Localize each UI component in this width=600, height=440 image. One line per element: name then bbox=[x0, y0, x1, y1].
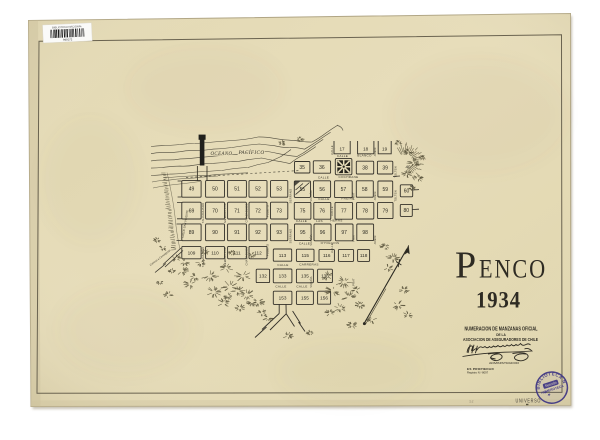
svg-text:92: 92 bbox=[255, 230, 261, 236]
svg-text:PRAT: PRAT bbox=[352, 278, 356, 286]
svg-text:118: 118 bbox=[360, 253, 368, 258]
svg-text:SERRANO: SERRANO bbox=[289, 189, 293, 204]
svg-text:116: 116 bbox=[323, 253, 331, 258]
svg-text:80: 80 bbox=[404, 208, 410, 214]
svg-text:CARRERAS: CARRERAS bbox=[299, 262, 319, 266]
svg-text:CALLE: CALLE bbox=[277, 263, 288, 267]
svg-text:TOLTEN: TOLTEN bbox=[394, 190, 398, 202]
svg-text:156: 156 bbox=[320, 295, 328, 300]
svg-text:39: 39 bbox=[382, 165, 388, 171]
svg-text:153: 153 bbox=[279, 296, 287, 301]
svg-text:Registro N.º 8097: Registro N.º 8097 bbox=[467, 371, 489, 375]
svg-text:DE LA: DE LA bbox=[496, 333, 506, 337]
svg-text:MEMBRILLAR: MEMBRILLAR bbox=[223, 247, 227, 266]
svg-text:38: 38 bbox=[362, 165, 368, 171]
svg-text:JUNIN: JUNIN bbox=[373, 236, 377, 245]
svg-text:50: 50 bbox=[212, 187, 218, 193]
svg-text:115: 115 bbox=[301, 253, 309, 258]
svg-text:ENCO: ENCO bbox=[479, 255, 547, 284]
svg-text:132: 132 bbox=[259, 274, 267, 279]
svg-text:CALLE: CALLE bbox=[296, 219, 307, 223]
svg-text:JUNIN: JUNIN bbox=[373, 192, 377, 201]
svg-text:77: 77 bbox=[341, 209, 347, 215]
svg-text:113: 113 bbox=[279, 253, 287, 258]
svg-text:TALCAHUANO: TALCAHUANO bbox=[201, 203, 205, 223]
svg-text:P: P bbox=[455, 245, 477, 287]
svg-text:51: 51 bbox=[234, 187, 240, 193]
svg-text:133: 133 bbox=[279, 274, 287, 279]
svg-text:PRAT: PRAT bbox=[352, 234, 356, 242]
svg-text:COCHRANE: COCHRANE bbox=[338, 175, 358, 179]
svg-text:52: 52 bbox=[255, 187, 261, 193]
svg-text:BLANCO: BLANCO bbox=[357, 154, 372, 158]
svg-text:CALLE: CALLE bbox=[337, 154, 348, 158]
svg-text:ES PROPIEDAD: ES PROPIEDAD bbox=[467, 367, 494, 371]
svg-text:69: 69 bbox=[189, 208, 195, 214]
svg-text:73: 73 bbox=[276, 208, 282, 214]
svg-text:95: 95 bbox=[300, 230, 306, 236]
svg-text:93: 93 bbox=[276, 230, 282, 236]
svg-text:96: 96 bbox=[320, 230, 326, 236]
svg-text:109: 109 bbox=[188, 250, 196, 255]
svg-text:97: 97 bbox=[341, 230, 347, 236]
svg-text:CALLE: CALLE bbox=[330, 243, 334, 253]
svg-text:OCEANO: OCEANO bbox=[211, 151, 233, 157]
svg-text:CALLE: CALLE bbox=[330, 145, 334, 155]
svg-text:76: 76 bbox=[320, 209, 326, 215]
svg-text:CALLE: CALLE bbox=[299, 241, 310, 245]
svg-text:1934: 1934 bbox=[476, 288, 521, 313]
svg-text:89: 89 bbox=[189, 230, 195, 236]
svg-text:78: 78 bbox=[362, 209, 368, 215]
svg-text:75: 75 bbox=[300, 209, 306, 215]
svg-text:PACÍFICO: PACÍFICO bbox=[238, 148, 265, 156]
svg-text:91: 91 bbox=[234, 230, 240, 236]
svg-text:CALLE: CALLE bbox=[296, 284, 307, 288]
svg-text:CHACABUCO: CHACABUCO bbox=[245, 204, 249, 223]
svg-text:LAS: LAS bbox=[316, 219, 323, 223]
svg-text:36: 36 bbox=[319, 165, 325, 171]
svg-text:TOLTEN: TOLTEN bbox=[394, 166, 398, 178]
svg-text:CHACABUCO: CHACABUCO bbox=[245, 247, 249, 266]
svg-text:PUDETO: PUDETO bbox=[266, 205, 270, 217]
svg-text:58: 58 bbox=[362, 187, 368, 193]
svg-text:90: 90 bbox=[212, 230, 218, 236]
svg-text:PUDETO: PUDETO bbox=[266, 244, 270, 256]
svg-text:79: 79 bbox=[383, 208, 389, 214]
svg-text:155: 155 bbox=[301, 296, 309, 301]
svg-text:SERRANO: SERRANO bbox=[289, 229, 293, 244]
svg-text:110: 110 bbox=[211, 250, 219, 255]
svg-text:CALLE: CALLE bbox=[318, 197, 329, 201]
svg-text:CALLE: CALLE bbox=[318, 176, 329, 180]
svg-text:18: 18 bbox=[363, 147, 369, 152]
svg-text:MEMBRILLAR: MEMBRILLAR bbox=[223, 203, 227, 222]
svg-text:ASOCIACION DE ASEGURADORES DE: ASOCIACION DE ASEGURADORES DE CHILE bbox=[463, 337, 538, 342]
svg-text:PRAT: PRAT bbox=[352, 192, 356, 200]
svg-text:17: 17 bbox=[339, 146, 345, 151]
svg-text:59: 59 bbox=[383, 187, 389, 193]
svg-text:CALLE: CALLE bbox=[330, 206, 334, 216]
svg-text:49: 49 bbox=[189, 187, 195, 193]
svg-text:56: 56 bbox=[319, 187, 325, 193]
svg-text:UNIVERSO: UNIVERSO bbox=[516, 398, 542, 404]
svg-text:53: 53 bbox=[276, 187, 282, 193]
svg-text:995073: 995073 bbox=[63, 37, 73, 41]
svg-text:35: 35 bbox=[299, 165, 305, 171]
svg-text:54: 54 bbox=[469, 399, 474, 404]
svg-text:JUNIN: JUNIN bbox=[373, 148, 377, 157]
svg-text:72: 72 bbox=[255, 208, 261, 214]
svg-text:NUMERACION DE MANZANAS OFICIAL: NUMERACION DE MANZANAS OFICIAL bbox=[465, 327, 538, 333]
svg-text:CALLE: CALLE bbox=[275, 285, 286, 289]
svg-text:HERAS: HERAS bbox=[330, 218, 342, 222]
svg-text:112: 112 bbox=[254, 250, 262, 255]
svg-text:19: 19 bbox=[382, 147, 388, 152]
svg-text:117: 117 bbox=[342, 253, 350, 258]
svg-text:57: 57 bbox=[341, 187, 347, 193]
svg-text:60: 60 bbox=[404, 189, 410, 195]
svg-text:70: 70 bbox=[212, 208, 218, 214]
svg-text:98: 98 bbox=[362, 230, 368, 236]
svg-text:ADMINISTRADOR: ADMINISTRADOR bbox=[489, 361, 519, 365]
svg-text:135: 135 bbox=[301, 274, 309, 279]
svg-text:O’HIGGINS: O’HIGGINS bbox=[321, 241, 340, 245]
svg-text:71: 71 bbox=[234, 208, 240, 214]
